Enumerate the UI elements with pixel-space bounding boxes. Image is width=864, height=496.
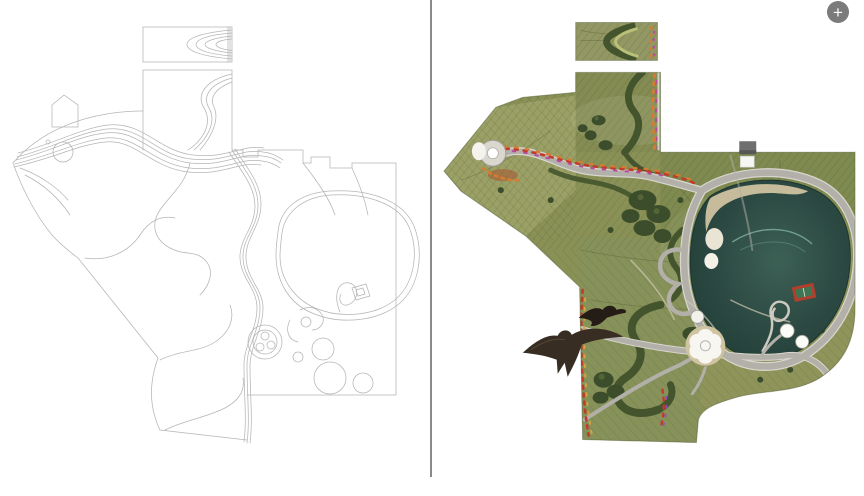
round-plaza-small xyxy=(691,310,704,323)
round-plaza-east xyxy=(796,335,809,348)
render-panel xyxy=(431,0,864,496)
zoom-in-button[interactable]: + xyxy=(827,1,849,23)
plus-icon: + xyxy=(833,3,843,22)
shore-pool xyxy=(704,253,718,269)
park-body xyxy=(431,1,864,496)
west-donut-plaza xyxy=(487,148,498,159)
top-parcel xyxy=(576,23,658,61)
shore-pool xyxy=(705,228,723,250)
lineplan-strokes xyxy=(13,27,419,443)
pavilion-building xyxy=(739,141,756,167)
round-plaza-east xyxy=(780,324,794,338)
lineplan-panel xyxy=(0,0,430,496)
panel-divider xyxy=(430,0,432,477)
